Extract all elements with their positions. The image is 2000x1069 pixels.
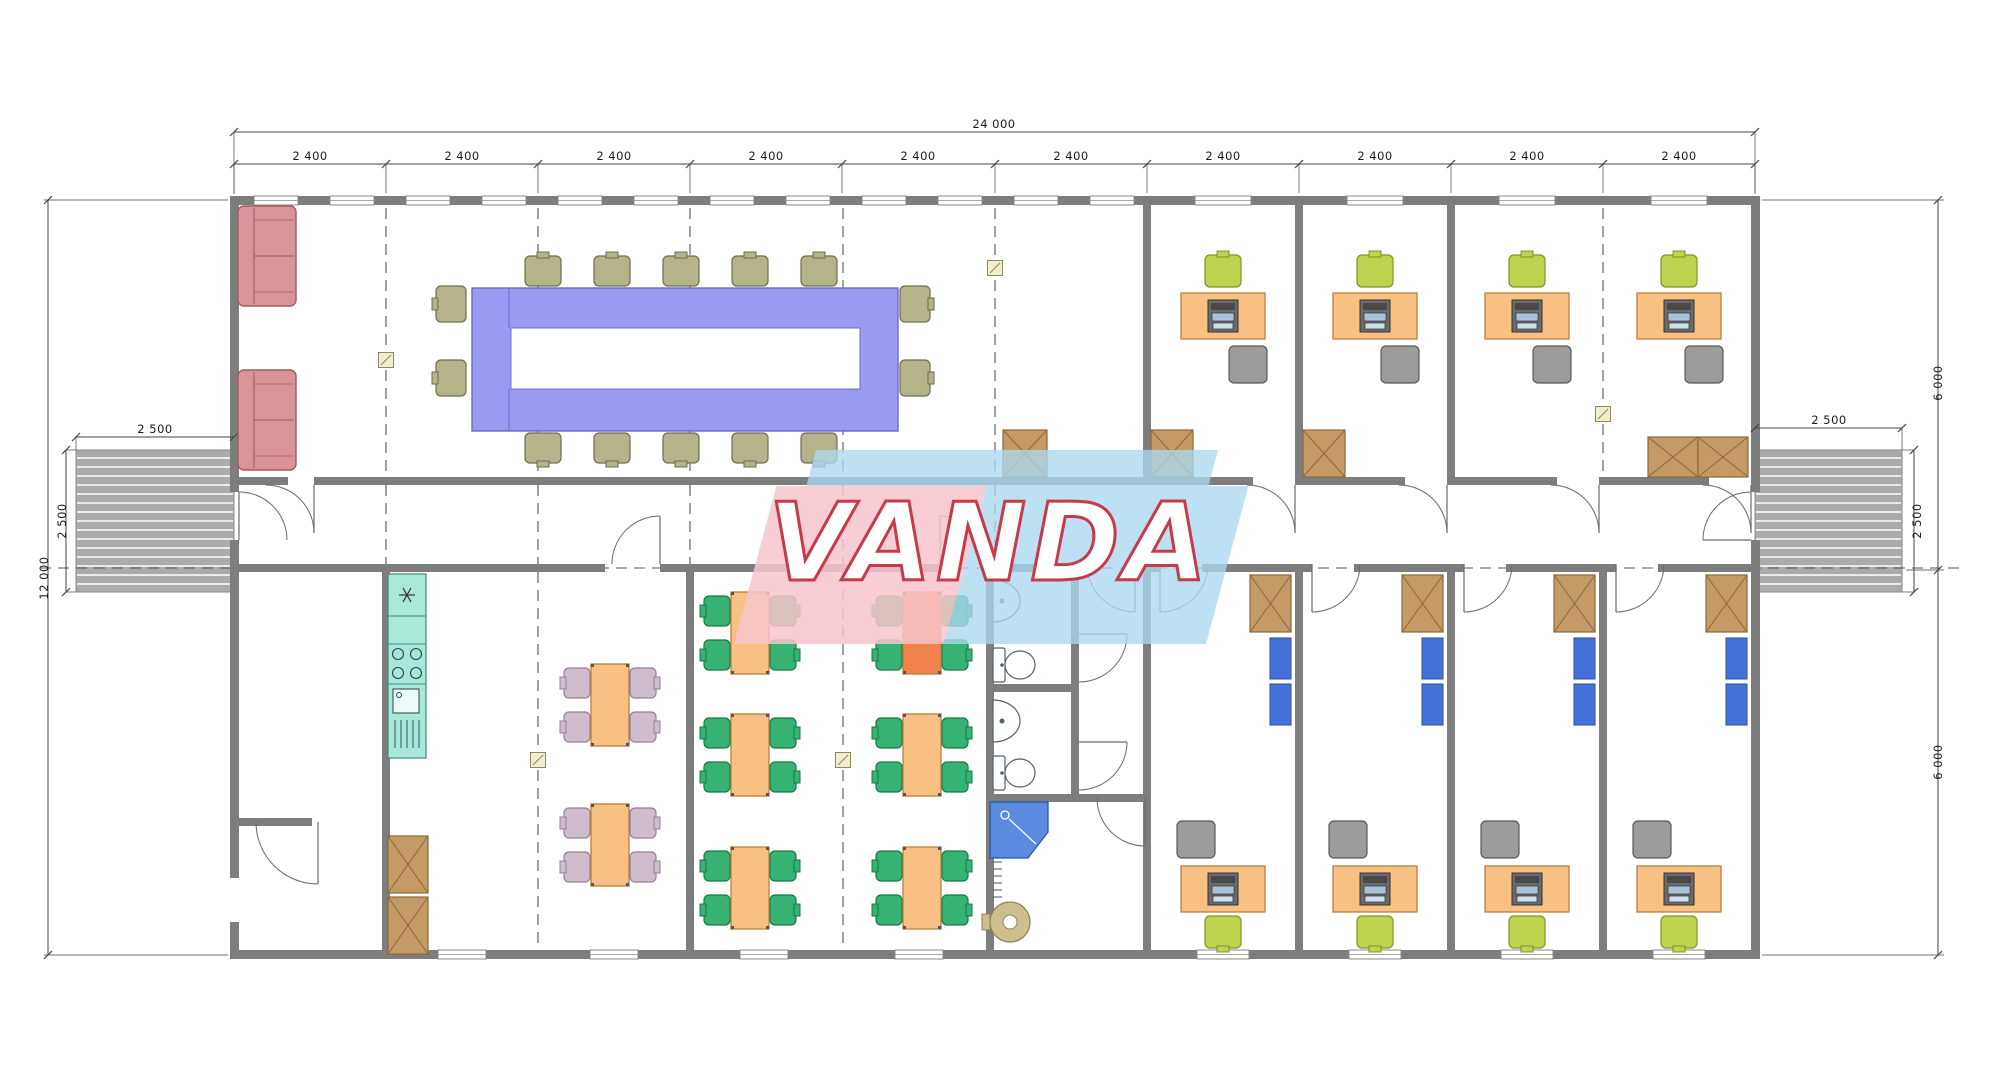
- dim-left-ramp-depth: 2 500: [55, 503, 69, 538]
- offices-bottom: [1177, 575, 1747, 952]
- bay-dimension-label: 2 400: [1357, 149, 1392, 163]
- dining-room: [388, 574, 660, 954]
- bay-dimension-label: 2 400: [1661, 149, 1696, 163]
- dim-left-ramp-width: 2 500: [137, 422, 172, 436]
- dim-overall-width: 24 000: [972, 117, 1015, 131]
- bay-dimension-label: 2 400: [1053, 149, 1088, 163]
- floor-plan: 24 000 2 4002 4002 4002 4002 4002 4002 4…: [0, 0, 2000, 1069]
- dim-right-ramp-width: 2 500: [1811, 413, 1846, 427]
- bay-dimension-label: 2 400: [900, 149, 935, 163]
- bay-dimension-label: 2 400: [1509, 149, 1544, 163]
- bay-dimension-label: 2 400: [748, 149, 783, 163]
- bay-dimension-label: 2 400: [444, 149, 479, 163]
- dim-overall-height: 12 000: [37, 556, 51, 599]
- conference-room: [238, 206, 1047, 477]
- dim-right-ramp-depth: 2 500: [1910, 503, 1924, 538]
- bay-dimension-label: 2 400: [596, 149, 631, 163]
- dim-right-upper-section: 6 000: [1931, 365, 1945, 400]
- bay-dimension-label: 2 400: [292, 149, 327, 163]
- dim-right-lower-section: 6 000: [1931, 744, 1945, 779]
- bay-dimension-label: 2 400: [1205, 149, 1240, 163]
